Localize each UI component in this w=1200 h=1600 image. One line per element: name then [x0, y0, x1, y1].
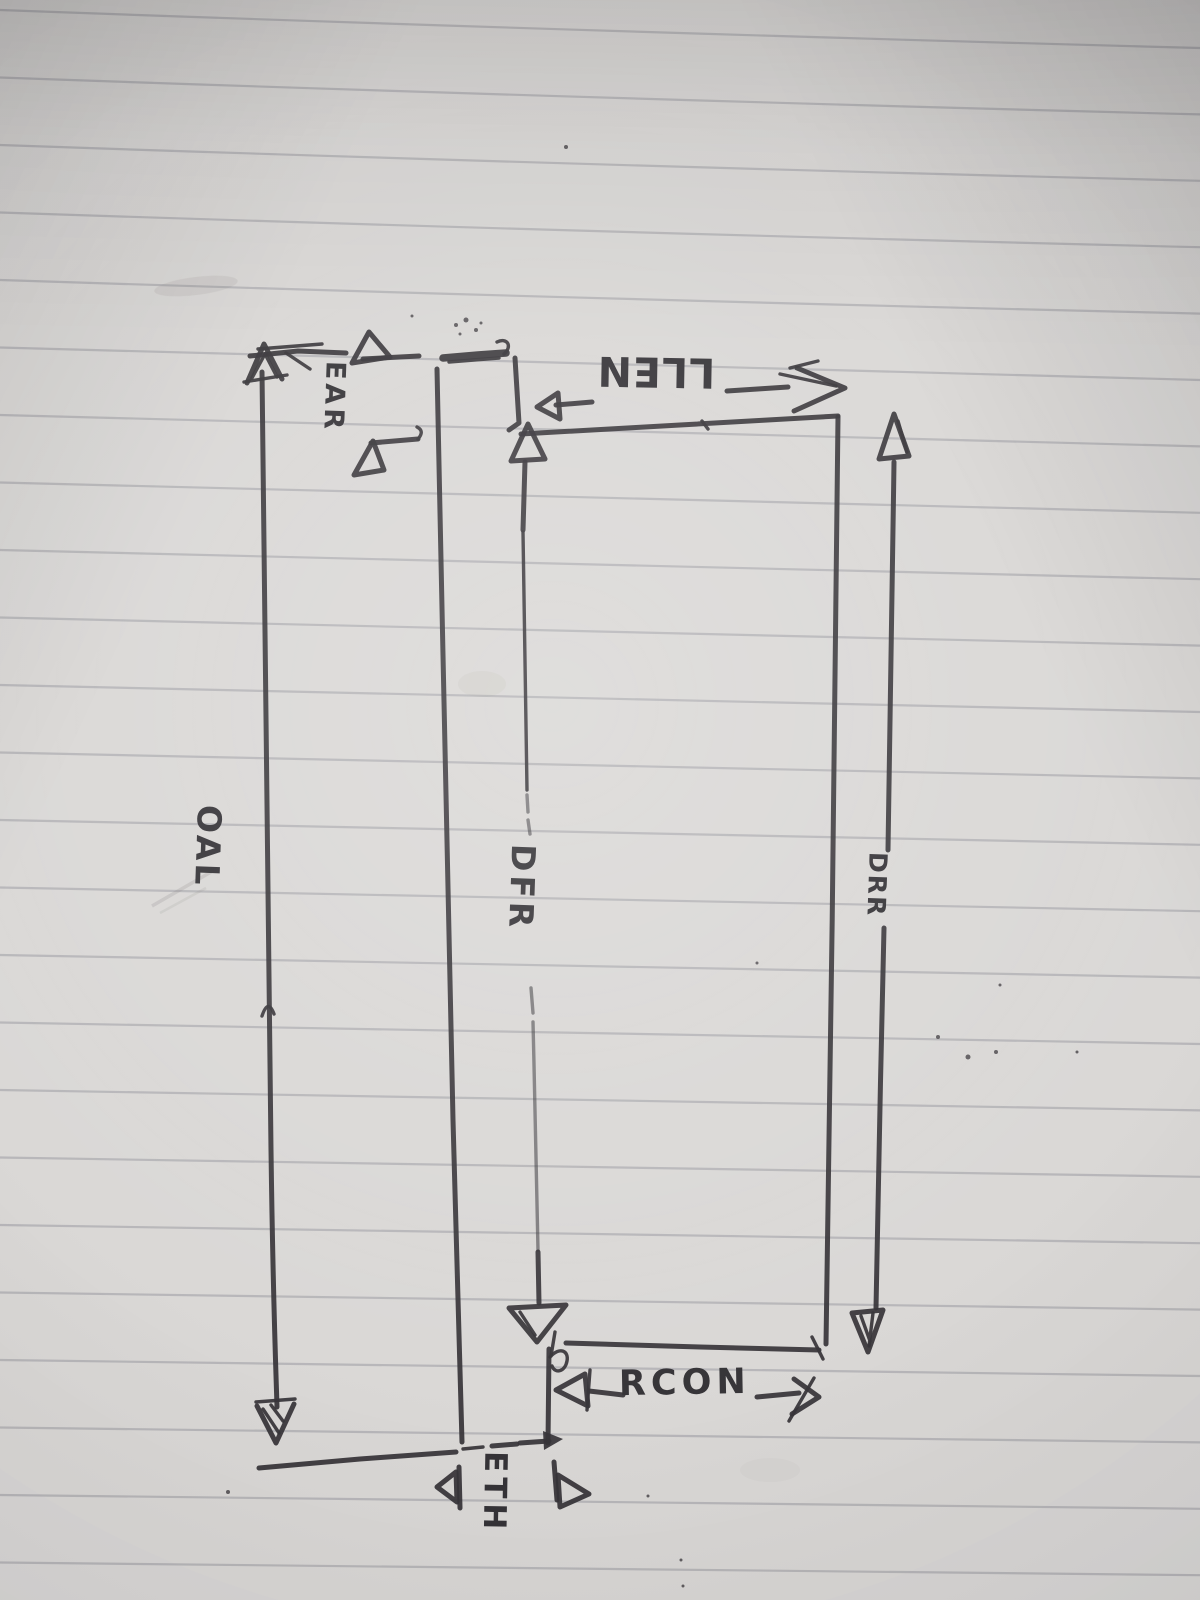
ruled-line	[0, 1293, 1200, 1310]
ruled-line	[0, 78, 1200, 115]
ruled-line	[0, 618, 1200, 646]
ruled-line	[0, 820, 1200, 845]
ear-dimension	[352, 332, 421, 475]
sketch-svg	[0, 0, 1200, 1600]
outline-top-edge	[521, 416, 838, 434]
ruled-line	[0, 753, 1200, 779]
label-ear: EAR	[319, 361, 349, 434]
ruled-line	[0, 1023, 1200, 1045]
ruled-line	[0, 1563, 1200, 1576]
oal-dimension-line	[262, 372, 277, 1407]
ruled-line	[0, 1428, 1200, 1443]
ruled-line	[0, 213, 1200, 248]
outline-bottom-tab	[548, 1349, 549, 1443]
ruled-line	[0, 1495, 1200, 1509]
llen-right-arrowhead-icon	[794, 368, 845, 411]
outline-bottom-edge	[566, 1343, 819, 1350]
ruled-line	[0, 550, 1200, 579]
drr-top-arrowhead-icon	[879, 414, 909, 459]
ruled-line	[0, 955, 1200, 978]
label-eth: ETH	[477, 1451, 510, 1535]
ruled-line	[0, 1225, 1200, 1243]
ruled-line	[0, 685, 1200, 712]
outline-right-edge	[826, 417, 838, 1344]
label-dfr: DFR	[503, 843, 540, 931]
bottom-baseline	[259, 1431, 563, 1468]
ruled-lines	[0, 10, 1200, 1575]
smudges	[152, 272, 800, 1482]
ruled-line	[0, 483, 1200, 513]
ear-bottom-arrowhead-icon	[354, 441, 384, 475]
ear-top-arrowhead-icon	[352, 332, 390, 363]
ruled-line	[0, 1360, 1200, 1376]
label-oal: OAL	[190, 804, 227, 888]
notebook-photo: EAR OAL DFR DRR ETH LLEN RCON	[0, 0, 1200, 1600]
eth-left-arrowhead-icon	[437, 1472, 457, 1502]
dfr-bottom-arrowhead-icon	[509, 1305, 566, 1342]
label-llen: LLEN	[590, 349, 723, 393]
ruled-line	[0, 145, 1200, 181]
rcon-left-arrowhead-icon	[556, 1374, 588, 1406]
ruled-line	[0, 1158, 1200, 1177]
ruled-line	[0, 1090, 1200, 1110]
label-drr: DRR	[863, 852, 891, 918]
left-extension-line	[437, 341, 508, 1442]
ruled-line	[0, 10, 1200, 48]
label-rcon: RCON	[619, 1365, 751, 1403]
